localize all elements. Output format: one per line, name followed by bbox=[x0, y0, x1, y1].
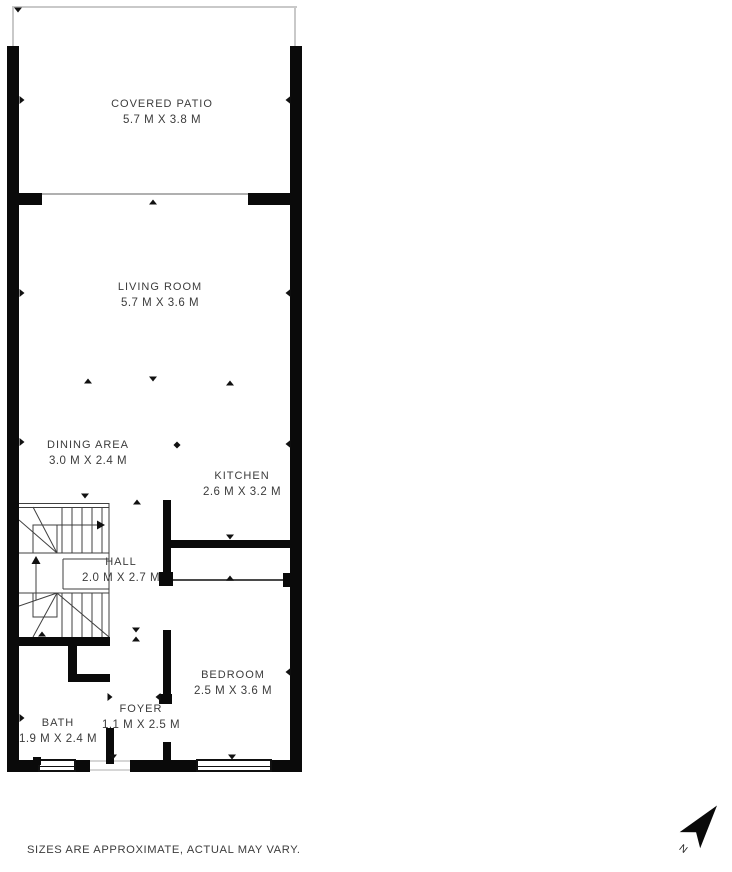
room-label-bedroom: BEDROOM 2.5 M X 3.6 M bbox=[194, 668, 272, 700]
direction-marker bbox=[108, 693, 113, 701]
direction-marker bbox=[132, 637, 140, 642]
sliding-door-line bbox=[42, 193, 248, 195]
wall-segment bbox=[163, 742, 171, 764]
direction-marker bbox=[20, 289, 25, 297]
room-dims: 2.6 M X 3.2 M bbox=[203, 484, 281, 501]
room-name: LIVING ROOM bbox=[118, 280, 202, 295]
room-name: KITCHEN bbox=[203, 469, 281, 484]
wall-segment bbox=[248, 193, 302, 205]
window-pane-line bbox=[198, 766, 270, 767]
direction-marker bbox=[20, 438, 25, 446]
door-jamb bbox=[159, 572, 173, 586]
closet-line bbox=[171, 579, 283, 581]
direction-marker bbox=[14, 8, 22, 13]
room-dims: 1.1 M X 2.5 M bbox=[102, 717, 180, 734]
room-dims: 5.7 M X 3.8 M bbox=[111, 112, 213, 129]
wall-segment bbox=[272, 760, 302, 772]
floor-plan: COVERED PATIO 5.7 M X 3.8 M LIVING ROOM … bbox=[0, 0, 732, 872]
room-name: COVERED PATIO bbox=[111, 97, 213, 112]
wall-segment bbox=[68, 646, 77, 682]
room-label-hall: HALL 2.0 M X 2.7 M bbox=[82, 555, 160, 587]
direction-marker bbox=[226, 535, 234, 540]
patio-outline-left bbox=[12, 6, 14, 46]
wall-segment bbox=[290, 46, 302, 772]
patio-outline-top bbox=[12, 6, 297, 8]
room-label-covered-patio: COVERED PATIO 5.7 M X 3.8 M bbox=[111, 97, 213, 129]
direction-marker bbox=[149, 377, 157, 382]
north-arrow-icon: N bbox=[674, 798, 732, 866]
room-label-living-room: LIVING ROOM 5.7 M X 3.6 M bbox=[118, 280, 202, 312]
window-jamb bbox=[33, 757, 41, 765]
wall-segment bbox=[7, 46, 19, 772]
direction-marker bbox=[226, 381, 234, 386]
direction-marker bbox=[20, 96, 25, 104]
disclaimer-text: SIZES ARE APPROXIMATE, ACTUAL MAY VARY. bbox=[27, 844, 301, 856]
wall-segment bbox=[163, 630, 171, 703]
bath-window bbox=[38, 759, 76, 772]
wall-segment bbox=[7, 637, 110, 646]
direction-marker bbox=[133, 500, 141, 505]
door-threshold-line bbox=[90, 769, 130, 771]
window-pane-line bbox=[40, 766, 74, 767]
direction-marker bbox=[84, 379, 92, 384]
direction-marker bbox=[173, 441, 180, 448]
room-name: BEDROOM bbox=[194, 668, 272, 683]
bedroom-window bbox=[196, 759, 272, 772]
direction-marker bbox=[149, 200, 157, 205]
door-jamb bbox=[283, 573, 292, 587]
wall-segment bbox=[7, 193, 42, 205]
room-dims: 3.0 M X 2.4 M bbox=[47, 453, 129, 470]
direction-marker bbox=[132, 628, 140, 633]
room-dims: 5.7 M X 3.6 M bbox=[118, 295, 202, 312]
room-label-foyer: FOYER 1.1 M X 2.5 M bbox=[102, 702, 180, 734]
room-label-bath: BATH 1.9 M X 2.4 M bbox=[19, 716, 97, 748]
compass-n-label: N bbox=[677, 843, 689, 856]
room-label-dining-area: DINING AREA 3.0 M X 2.4 M bbox=[47, 438, 129, 470]
room-label-kitchen: KITCHEN 2.6 M X 3.2 M bbox=[203, 469, 281, 501]
room-dims: 1.9 M X 2.4 M bbox=[19, 731, 97, 748]
patio-outline-right bbox=[294, 6, 296, 46]
room-dims: 2.0 M X 2.7 M bbox=[82, 570, 160, 587]
room-name: FOYER bbox=[102, 702, 180, 717]
wall-segment bbox=[76, 760, 90, 772]
room-name: HALL bbox=[82, 555, 160, 570]
wall-segment bbox=[163, 540, 302, 548]
room-name: DINING AREA bbox=[47, 438, 129, 453]
room-name: BATH bbox=[19, 716, 97, 731]
wall-segment bbox=[77, 674, 110, 682]
room-dims: 2.5 M X 3.6 M bbox=[194, 683, 272, 700]
